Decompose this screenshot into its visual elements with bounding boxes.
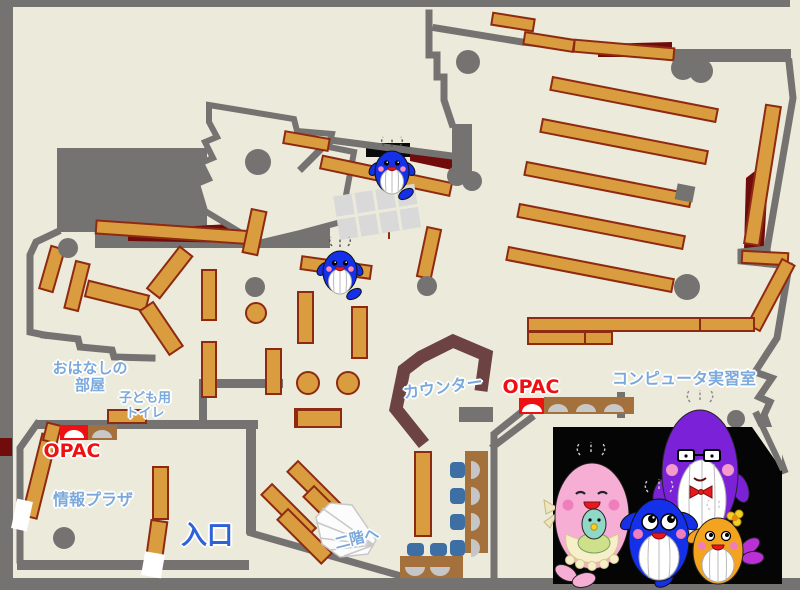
label-computer-room: コンピュータ実習室 bbox=[612, 370, 756, 388]
label-kids-toilet: 子ども用 トイレ bbox=[119, 392, 171, 422]
label-info-plaza: 情報プラザ bbox=[53, 491, 133, 509]
library-floor-map: おはなしの 部屋 子ども用 トイレ OPAC 情報プラザ 入口 カウンター OP… bbox=[0, 0, 800, 590]
label-opac-left: OPAC bbox=[44, 441, 101, 463]
service-desk bbox=[459, 407, 493, 422]
label-opac-right: OPAC bbox=[503, 377, 560, 399]
shelf-notch bbox=[675, 183, 696, 202]
opac-station-right bbox=[519, 397, 634, 414]
opac-station-left bbox=[60, 425, 117, 440]
pillar bbox=[245, 149, 271, 175]
label-storytime-room: おはなしの 部屋 bbox=[52, 360, 127, 395]
label-entrance: 入口 bbox=[181, 522, 233, 552]
